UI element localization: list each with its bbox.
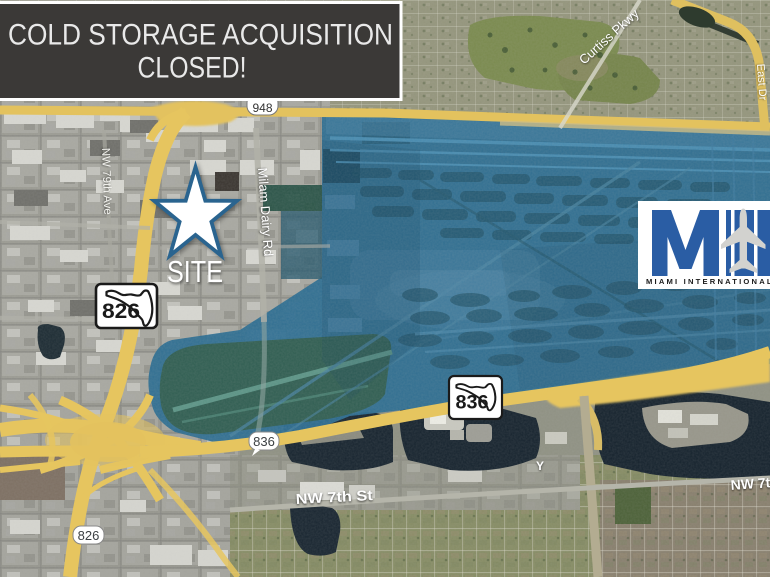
svg-text:COLD STORAGE ACQUISITION: COLD STORAGE ACQUISITION: [8, 19, 393, 52]
svg-text:NW 7t: NW 7t: [730, 474, 770, 493]
svg-text:836: 836: [253, 434, 275, 449]
svg-text:CLOSED!: CLOSED!: [138, 52, 247, 85]
svg-text:SITE: SITE: [167, 254, 223, 289]
svg-text:826: 826: [102, 299, 140, 323]
svg-text:Y: Y: [536, 459, 544, 473]
svg-text:MIAMI INTERNATIONAL A: MIAMI INTERNATIONAL A: [646, 277, 770, 286]
svg-text:948: 948: [252, 101, 272, 115]
svg-text:826: 826: [78, 528, 100, 543]
svg-text:NW 79th Ave: NW 79th Ave: [99, 148, 113, 215]
svg-text:836: 836: [456, 392, 489, 414]
